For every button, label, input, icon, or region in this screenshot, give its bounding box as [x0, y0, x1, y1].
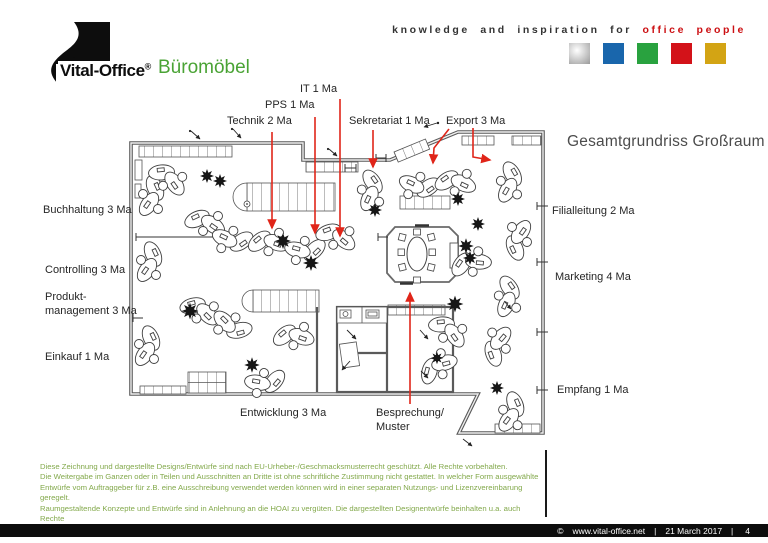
- plan-label-einkauf: Einkauf 1 Ma: [45, 351, 109, 365]
- plan-label-besprechung: Besprechung/ Muster: [376, 407, 444, 434]
- copyright-symbol: ©: [557, 526, 563, 536]
- footer-date: 21 March 2017: [665, 526, 722, 536]
- footer-page-number: 4: [745, 526, 750, 536]
- footer-separator: |: [654, 526, 656, 536]
- registered-mark: ®: [145, 61, 151, 71]
- brand-product: Büromöbel: [158, 57, 250, 79]
- plan-label-controlling: Controlling 3 Ma: [45, 264, 125, 278]
- plan-label-pps: PPS 1 Ma: [265, 99, 315, 113]
- plan-label-entwicklung: Entwicklung 3 Ma: [240, 407, 326, 421]
- plan-label-filialleitung: Filialleitung 2 Ma: [552, 205, 635, 219]
- plan-label-technik: Technik 2 Ma: [227, 115, 292, 129]
- swatch-green-icon: [637, 43, 658, 64]
- logo-wordmark: Vital-Office®: [58, 61, 154, 81]
- plan-label-export: Export 3 Ma: [446, 115, 505, 129]
- swatch-red-icon: [671, 43, 692, 64]
- plan-label-it: IT 1 Ma: [300, 83, 337, 97]
- plan-label-marketing: Marketing 4 Ma: [555, 271, 631, 285]
- legal-line: Diese Zeichnung und dargestellte Designs…: [40, 462, 545, 472]
- footer-separator: |: [731, 526, 733, 536]
- tagline: knowledge and inspiration for office peo…: [392, 24, 746, 36]
- footer-website: www.vital-office.net: [573, 526, 646, 536]
- slide-page: Vital-Office® Büromöbel knowledge and in…: [0, 0, 768, 543]
- plan-title: Gesamtgrundriss Großraum: [567, 133, 765, 151]
- swatch-blue-icon: [603, 43, 624, 64]
- brand-name: Vital-Office: [60, 61, 145, 80]
- tagline-red: office people: [642, 24, 746, 36]
- legal-line: Raumgestaltende Konzepte und Entwürfe si…: [40, 504, 545, 525]
- plan-label-empfang: Empfang 1 Ma: [557, 384, 629, 398]
- color-swatches: [569, 43, 726, 64]
- legal-line: Entwürfe vom Auftraggeber für z.B. eine …: [40, 483, 545, 504]
- legal-line: Die Weitergabe im Ganzen oder in Teilen …: [40, 472, 545, 482]
- plan-label-buchhaltung: Buchhaltung 3 Ma: [43, 204, 132, 218]
- swatch-silver-icon: [569, 43, 590, 64]
- footer-bar: © www.vital-office.net | 21 March 2017 |…: [0, 524, 768, 537]
- tagline-black: knowledge and inspiration for: [392, 24, 632, 36]
- plan-label-sekretariat: Sekretariat 1 Ma: [349, 115, 430, 129]
- swatch-yellow-icon: [705, 43, 726, 64]
- plan-label-produktmanagement: Produkt- management 3 Ma: [45, 291, 137, 318]
- vertical-divider: [545, 450, 547, 517]
